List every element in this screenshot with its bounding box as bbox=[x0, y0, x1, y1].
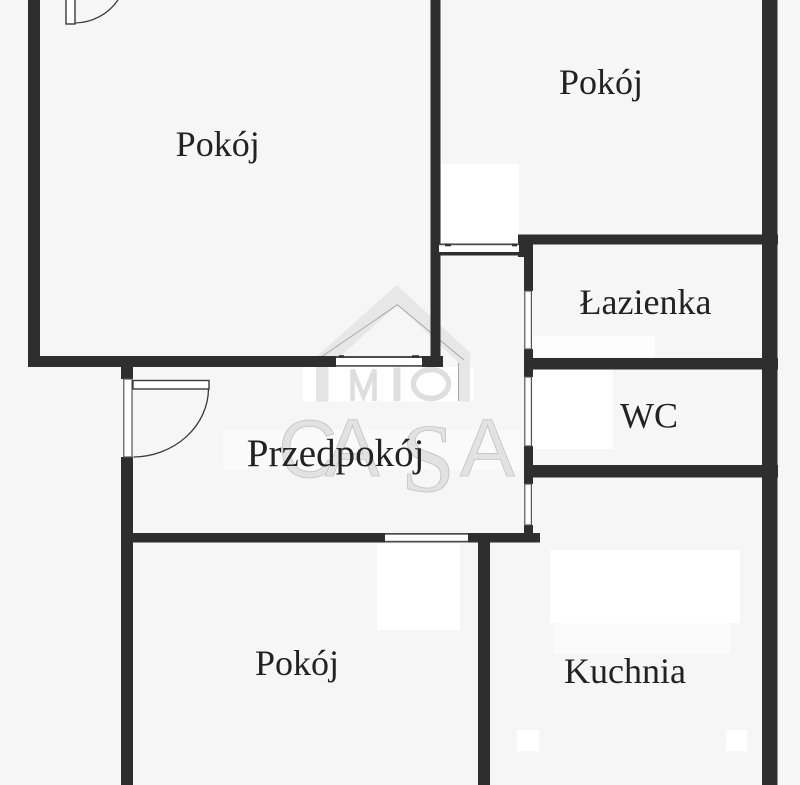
svg-text:Pokój: Pokój bbox=[255, 643, 339, 683]
svg-text:Przedpokój: Przedpokój bbox=[247, 432, 425, 475]
svg-text:Kuchnia: Kuchnia bbox=[564, 651, 686, 691]
svg-text:WC: WC bbox=[620, 396, 678, 436]
svg-text:Pokój: Pokój bbox=[176, 124, 260, 164]
svg-text:Pokój: Pokój bbox=[559, 62, 643, 102]
svg-text:A: A bbox=[460, 403, 515, 494]
svg-text:Łazienka: Łazienka bbox=[580, 282, 712, 322]
